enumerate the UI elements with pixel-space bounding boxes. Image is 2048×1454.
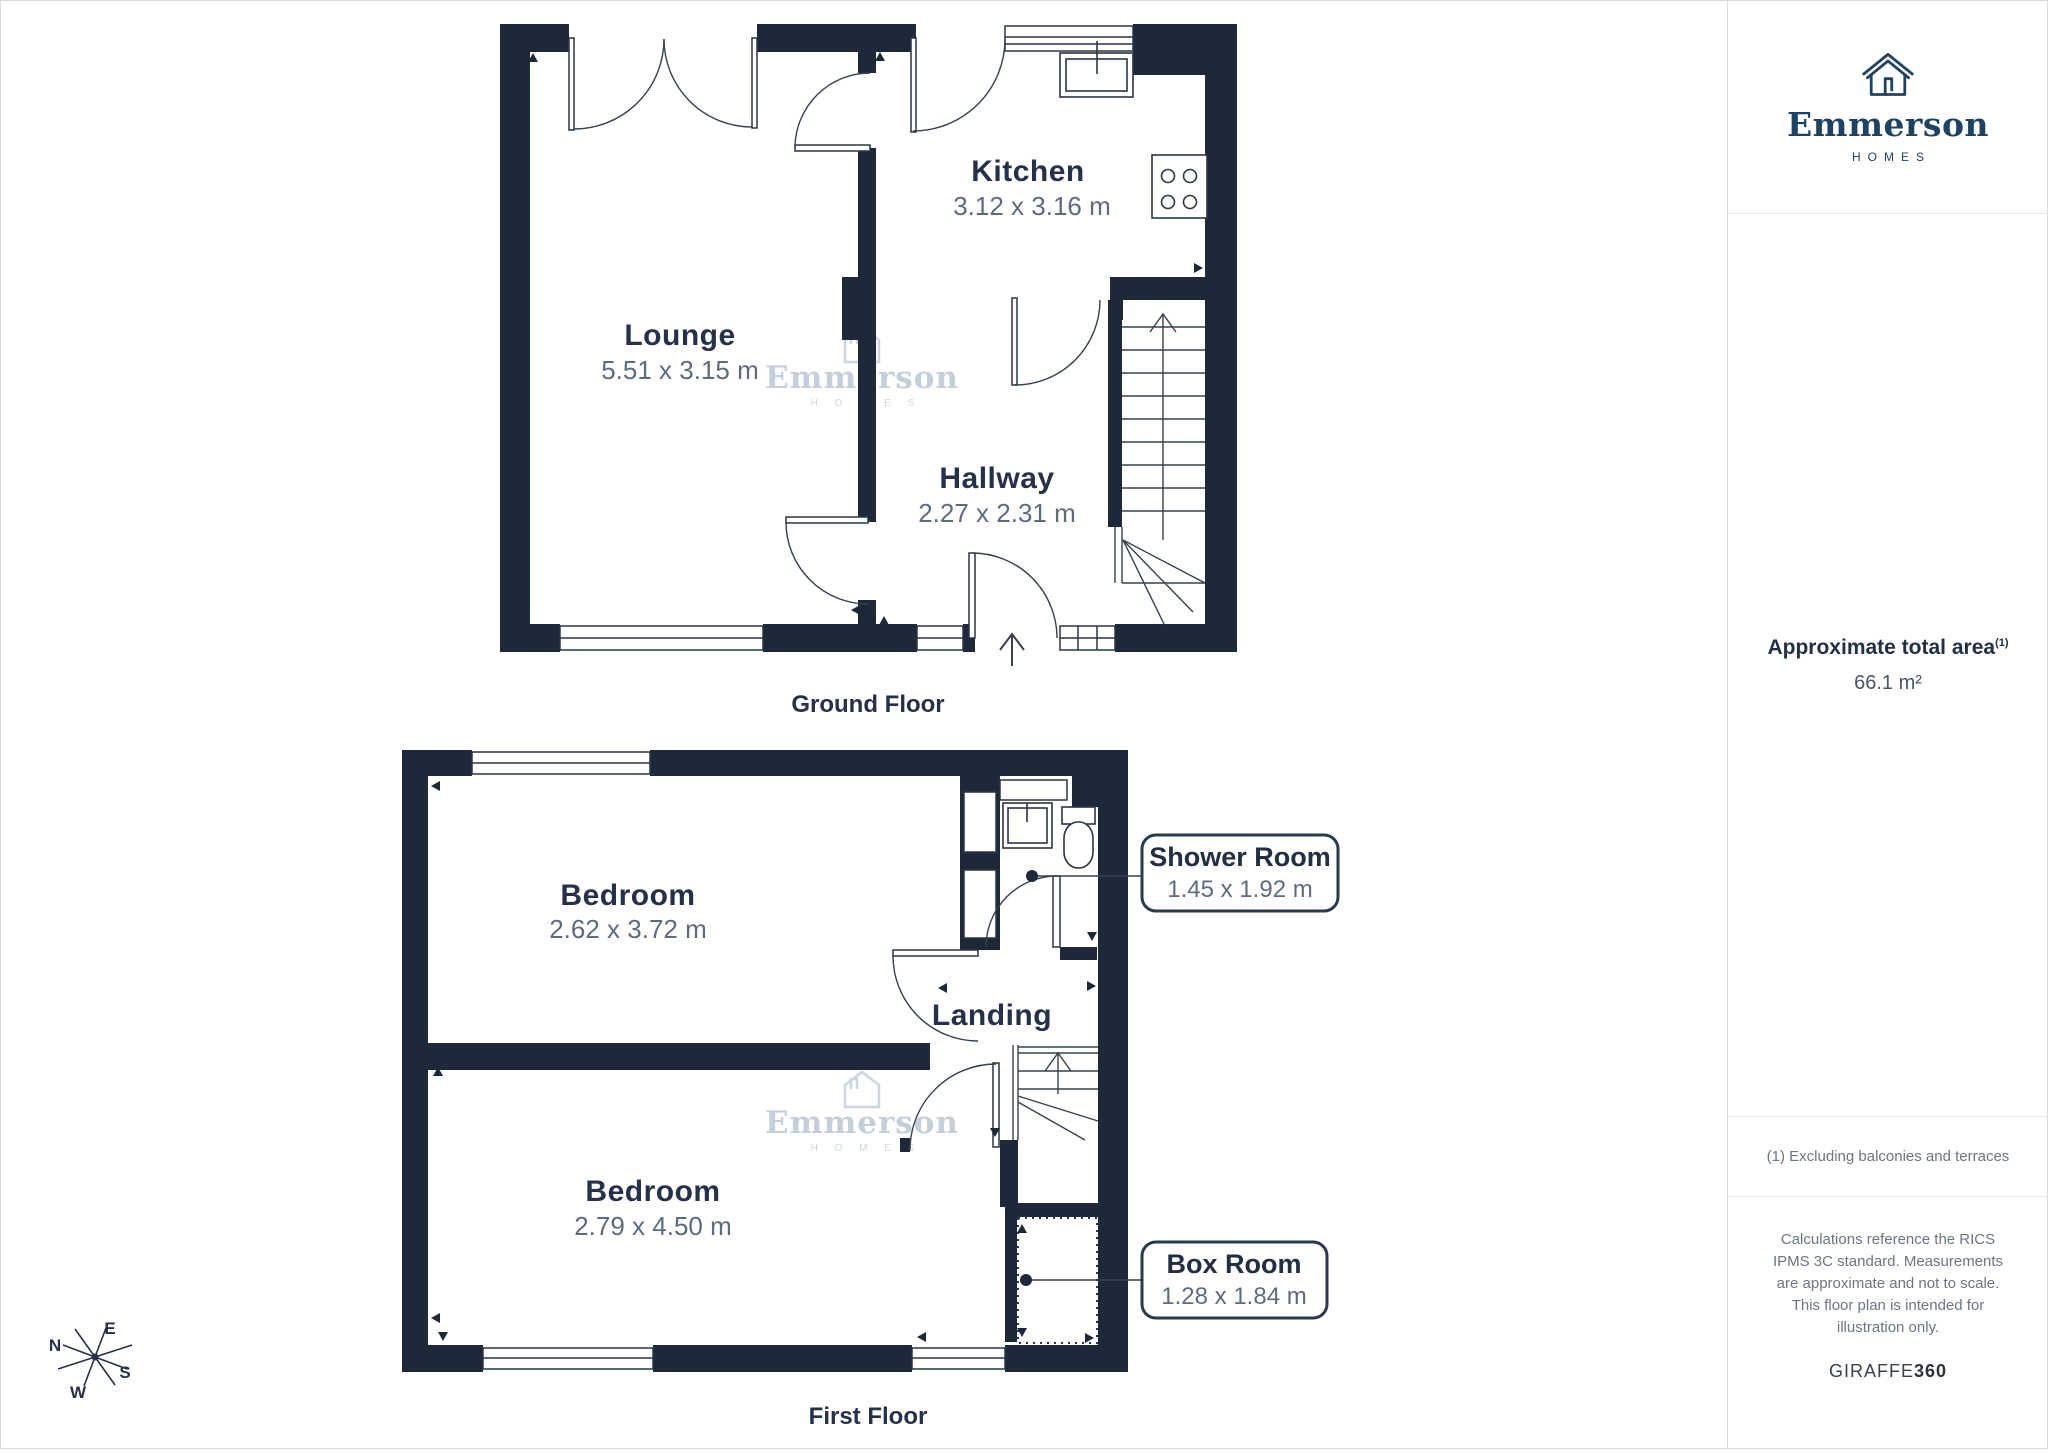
box-room-callout: Box Room 1.28 x 1.84 m (1142, 1242, 1327, 1318)
emmerson-house-icon (1860, 49, 1916, 99)
room-label-hallway: Hallway (939, 462, 1054, 495)
ground-stairs (1115, 314, 1205, 624)
info-sidebar: Emmerson HOMES Approximate total area(1)… (1727, 0, 2048, 1449)
footnote: (1) Excluding balconies and terraces (1728, 1117, 2048, 1197)
compass-w: W (70, 1383, 87, 1402)
room-label-bedroom-1: Bedroom (560, 879, 695, 912)
shower-room-callout: Shower Room 1.45 x 1.92 m (1142, 835, 1338, 911)
disclaimer-text: Calculations reference the RICS IPMS 3C … (1763, 1229, 2013, 1339)
room-label-landing: Landing (932, 999, 1052, 1032)
disclaimer-block: Calculations reference the RICS IPMS 3C … (1728, 1197, 2048, 1449)
first-floor-plan: Emmerson H O M E S (402, 750, 1338, 1430)
room-dims-kitchen: 3.12 x 3.16 m (953, 191, 1111, 221)
ground-floor-title: Ground Floor (791, 691, 944, 718)
room-dims-lounge: 5.51 x 3.15 m (601, 355, 759, 385)
shower-tray-icon (1003, 803, 1052, 848)
total-area-text: Approximate total area (1767, 636, 1995, 659)
total-area-block: Approximate total area(1) 66.1 m² (1728, 214, 2048, 1117)
room-label-kitchen: Kitchen (971, 155, 1085, 188)
watermark-logo-first: Emmerson H O M E S (765, 1072, 959, 1154)
giraffe-text: GIRAFFE (1829, 1361, 1914, 1381)
kitchen-hob-icon (1152, 155, 1207, 218)
brand-tagline: HOMES (1852, 150, 1931, 164)
entrance-arrow-icon (1000, 634, 1024, 666)
total-area-value: 66.1 m² (1854, 672, 1922, 695)
room-dims-bedroom-1: 2.62 x 3.72 m (549, 914, 707, 944)
room-dims-bedroom-2: 2.79 x 4.50 m (574, 1211, 732, 1241)
callout-label-shower-room: Shower Room (1149, 842, 1331, 872)
floorplan-page: Emmerson H O M E S (0, 0, 2048, 1449)
total-area-label: Approximate total area(1) (1767, 636, 2008, 660)
room-dims-hallway: 2.27 x 2.31 m (918, 498, 1076, 528)
brand-block: Emmerson HOMES (1728, 0, 2048, 214)
callout-dims-shower-room: 1.45 x 1.92 m (1167, 876, 1312, 903)
compass-e: E (104, 1319, 115, 1338)
ground-floor-plan: Emmerson H O M E S (500, 24, 1237, 718)
compass-icon: N E S W (49, 1319, 132, 1402)
ground-walls (500, 24, 1237, 652)
callout-label-box-room: Box Room (1167, 1249, 1302, 1279)
giraffe360-logo: GIRAFFE360 (1829, 1361, 1947, 1382)
callout-dims-box-room: 1.28 x 1.84 m (1161, 1283, 1306, 1310)
compass-s: S (119, 1363, 130, 1382)
total-area-superscript: (1) (1995, 637, 2008, 649)
first-stairs (1013, 1045, 1098, 1140)
toilet-icon (1062, 807, 1095, 868)
brand-name: Emmerson (1787, 105, 1989, 144)
watermark-text: Emmerson (765, 1105, 959, 1141)
compass-n: N (49, 1336, 61, 1355)
room-label-bedroom-2: Bedroom (585, 1175, 720, 1208)
room-label-lounge: Lounge (624, 319, 735, 352)
first-floor-title: First Floor (809, 1403, 928, 1430)
giraffe-360-text: 360 (1914, 1361, 1947, 1381)
